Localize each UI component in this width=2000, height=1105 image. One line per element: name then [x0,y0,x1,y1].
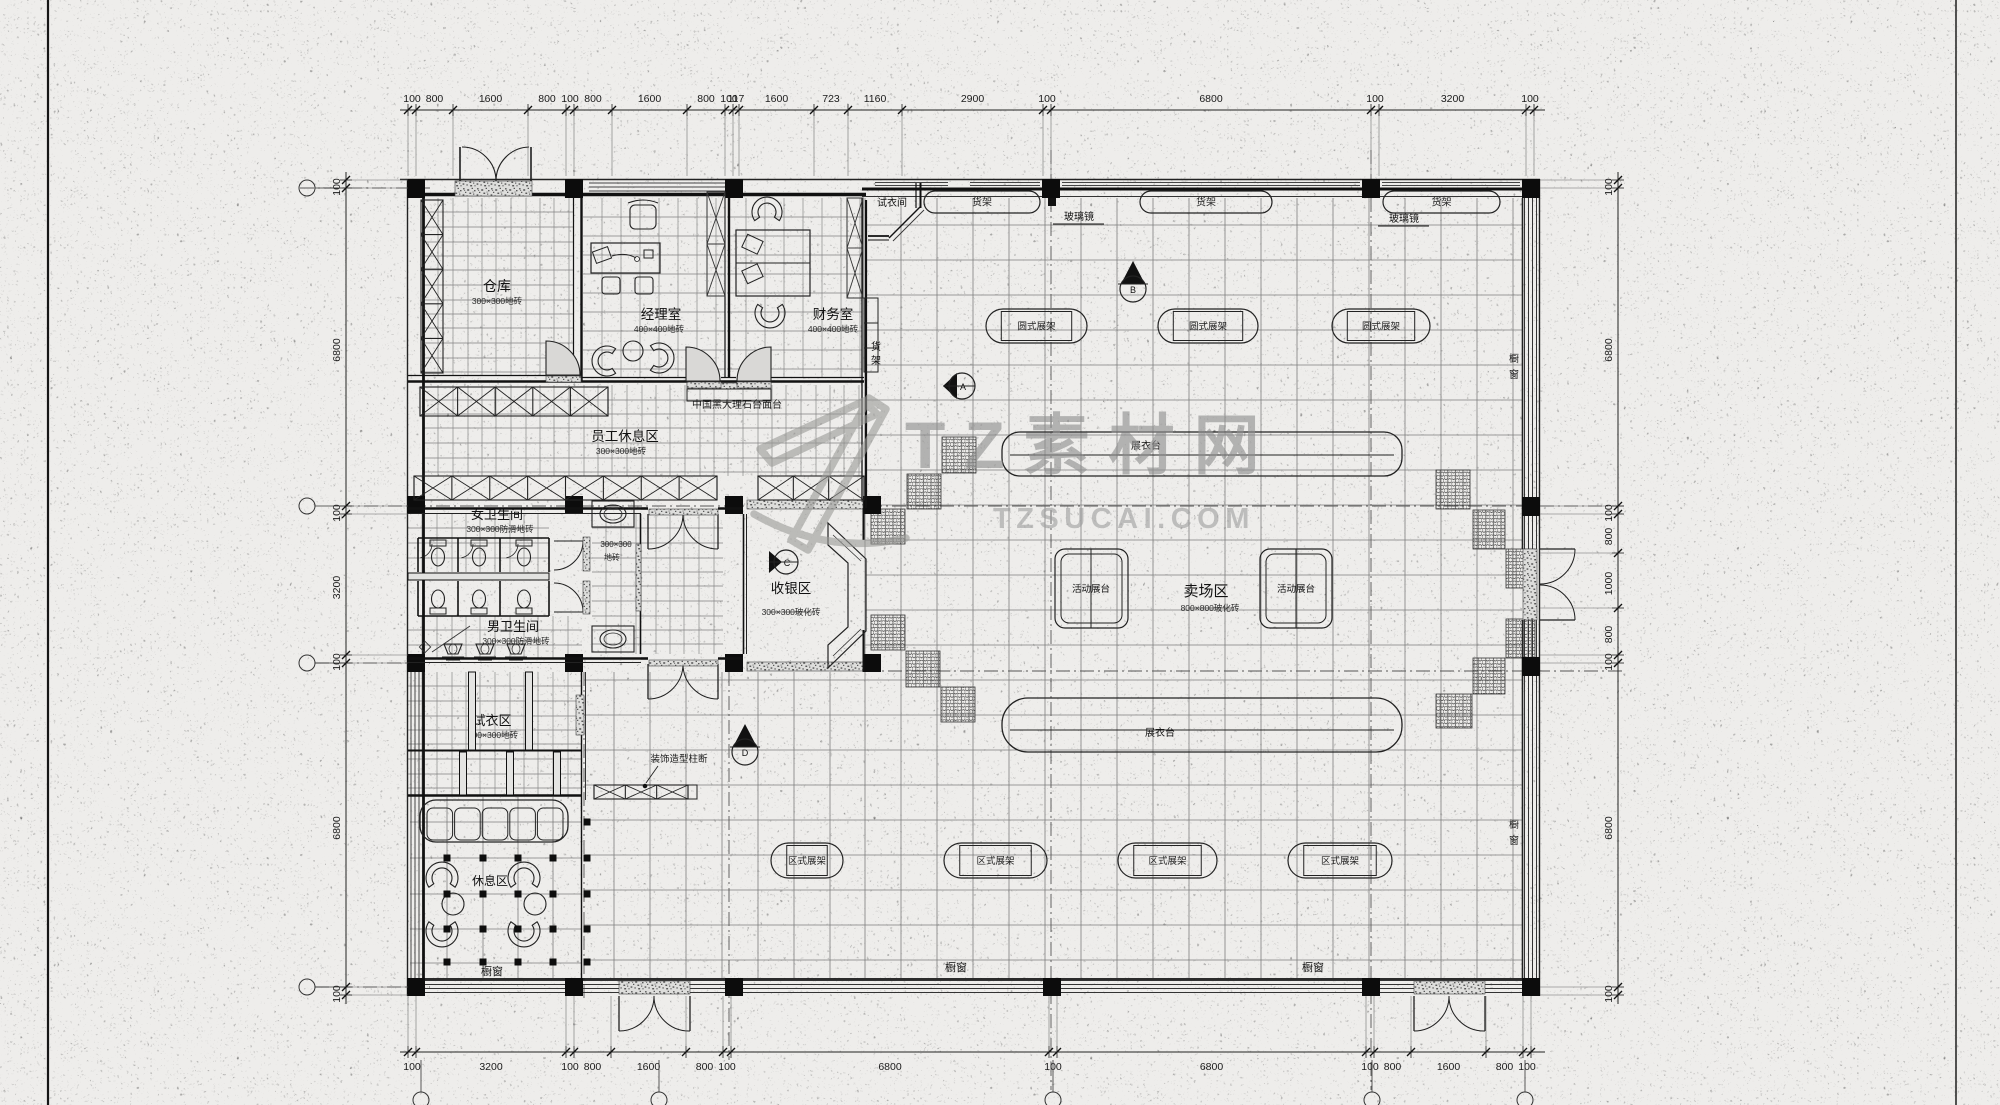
svg-text:6800: 6800 [1200,1061,1224,1073]
svg-text:800: 800 [426,93,444,105]
svg-text:员工休息区: 员工休息区 [591,428,659,444]
svg-text:女卫生间: 女卫生间 [471,507,523,522]
svg-text:活动展台: 活动展台 [1277,583,1315,595]
svg-text:展衣台: 展衣台 [1145,726,1175,739]
svg-text:TZ素材网: TZ素材网 [905,408,1279,482]
svg-text:橱: 橱 [1509,818,1519,831]
svg-text:休息区: 休息区 [472,873,508,888]
svg-text:100: 100 [1038,93,1056,105]
svg-text:活动展台: 活动展台 [1072,583,1110,595]
svg-text:6800: 6800 [1603,338,1615,362]
svg-text:100: 100 [1361,1061,1379,1073]
svg-text:玻璃镜: 玻璃镜 [1389,212,1419,225]
svg-text:圆式展架: 圆式展架 [1362,320,1401,332]
svg-text:橱窗: 橱窗 [1302,960,1324,974]
svg-text:800: 800 [1384,1061,1402,1073]
svg-text:6800: 6800 [878,1061,902,1073]
svg-text:1600: 1600 [479,93,503,105]
svg-text:800: 800 [1603,528,1615,546]
svg-text:橱窗: 橱窗 [481,964,503,978]
svg-text:800: 800 [538,93,556,105]
svg-text:100: 100 [403,1061,421,1073]
svg-text:货: 货 [871,340,881,353]
svg-text:800: 800 [584,93,602,105]
svg-text:区式展架: 区式展架 [1321,855,1360,867]
svg-text:经理室: 经理室 [641,306,682,322]
svg-text:800: 800 [584,1061,602,1073]
svg-text:100: 100 [718,1061,736,1073]
svg-text:卖场区: 卖场区 [1183,583,1228,600]
svg-text:6800: 6800 [1603,816,1615,840]
svg-text:100: 100 [1603,653,1615,671]
svg-text:B: B [1130,285,1136,295]
svg-text:100: 100 [1366,93,1384,105]
svg-text:收银区: 收银区 [771,581,812,596]
svg-text:仓库: 仓库 [483,278,511,294]
svg-text:1600: 1600 [638,93,662,105]
svg-text:100: 100 [561,1061,579,1073]
svg-text:玻璃镜: 玻璃镜 [1064,210,1094,223]
svg-text:1000: 1000 [1603,572,1615,596]
svg-text:区式展架: 区式展架 [976,855,1015,867]
svg-text:100: 100 [331,178,343,196]
svg-text:架: 架 [871,355,881,367]
svg-text:1600: 1600 [765,93,789,105]
svg-text:6800: 6800 [331,816,343,840]
svg-text:6800: 6800 [331,338,343,362]
svg-text:100: 100 [1518,1061,1536,1073]
svg-text:货架: 货架 [972,196,992,209]
svg-text:货架: 货架 [1432,196,1452,209]
svg-text:橱: 橱 [1509,352,1519,365]
svg-text:货架: 货架 [1196,196,1216,209]
svg-text:6800: 6800 [1199,93,1223,105]
svg-text:100: 100 [331,504,343,522]
svg-text:100: 100 [561,93,579,105]
svg-text:100: 100 [331,653,343,671]
svg-text:TZSUCAI.COM: TZSUCAI.COM [993,503,1255,535]
svg-text:装饰造型柱断: 装饰造型柱断 [650,753,708,765]
svg-text:试衣区: 试衣区 [472,713,511,728]
svg-text:100: 100 [403,93,421,105]
svg-text:800: 800 [1496,1061,1514,1073]
svg-text:财务室: 财务室 [813,306,854,322]
svg-text:窗: 窗 [1509,368,1519,381]
svg-text:1600: 1600 [637,1061,661,1073]
svg-text:3200: 3200 [331,576,343,600]
svg-text:试衣间: 试衣间 [877,196,907,209]
svg-text:3200: 3200 [1441,93,1465,105]
svg-text:A: A [960,382,966,392]
svg-text:800: 800 [1603,626,1615,644]
svg-text:3200: 3200 [479,1061,503,1073]
svg-text:100: 100 [1603,178,1615,196]
svg-text:1160: 1160 [864,93,887,105]
svg-text:D: D [742,748,749,758]
svg-text:窗: 窗 [1509,834,1519,847]
svg-text:区式展架: 区式展架 [1148,855,1187,867]
svg-text:100: 100 [331,985,343,1003]
svg-text:100: 100 [1521,93,1539,105]
svg-text:100: 100 [1603,504,1615,522]
svg-text:2900: 2900 [961,93,985,105]
svg-text:圆式展架: 圆式展架 [1189,320,1228,332]
svg-text:男卫生间: 男卫生间 [487,619,539,634]
svg-text:300×300: 300×300 [600,540,632,549]
svg-text:1600: 1600 [1437,1061,1461,1073]
svg-text:117: 117 [728,93,745,105]
svg-text:中国黑大理石台面台: 中国黑大理石台面台 [692,398,782,411]
svg-text:区式展架: 区式展架 [788,855,827,867]
svg-text:800: 800 [697,93,715,105]
svg-text:800: 800 [696,1061,714,1073]
svg-text:C: C [784,558,791,568]
svg-text:723: 723 [822,93,840,105]
svg-text:橱窗: 橱窗 [945,960,967,974]
svg-text:圆式展架: 圆式展架 [1017,320,1056,332]
svg-text:100: 100 [1603,985,1615,1003]
